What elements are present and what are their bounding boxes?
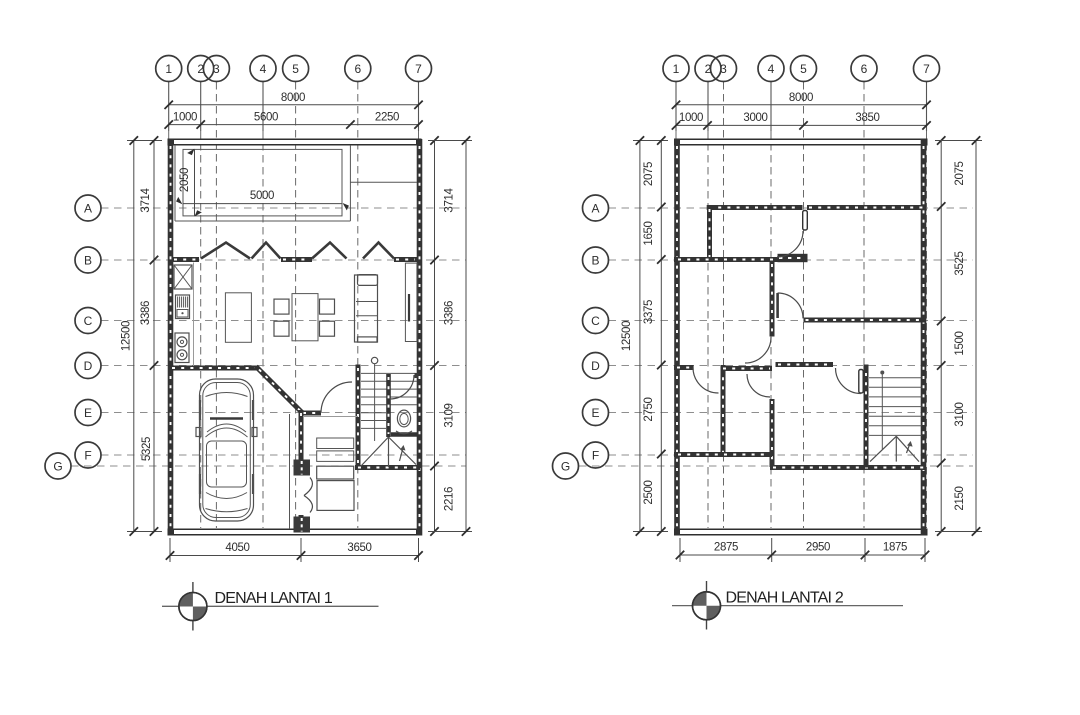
svg-text:2500: 2500 xyxy=(643,480,655,504)
svg-text:5: 5 xyxy=(292,62,299,76)
svg-text:3386: 3386 xyxy=(140,301,152,325)
svg-text:8000: 8000 xyxy=(789,92,813,104)
svg-text:DENAH LANTAI 2: DENAH LANTAI 2 xyxy=(726,589,844,606)
svg-text:2050: 2050 xyxy=(179,168,191,192)
svg-text:3714: 3714 xyxy=(444,187,456,212)
svg-text:2250: 2250 xyxy=(375,112,399,124)
svg-text:1650: 1650 xyxy=(643,221,655,245)
svg-text:2150: 2150 xyxy=(954,486,966,510)
svg-text:6: 6 xyxy=(354,62,361,76)
svg-text:G: G xyxy=(53,460,62,474)
svg-text:3375: 3375 xyxy=(643,300,655,324)
svg-text:E: E xyxy=(84,406,92,420)
svg-text:B: B xyxy=(591,254,599,268)
svg-text:1000: 1000 xyxy=(173,112,197,124)
svg-text:3714: 3714 xyxy=(140,187,152,212)
svg-text:E: E xyxy=(591,406,599,420)
svg-text:6: 6 xyxy=(861,62,868,76)
svg-text:7: 7 xyxy=(923,62,930,76)
svg-text:2875: 2875 xyxy=(714,542,738,554)
svg-text:F: F xyxy=(84,449,91,463)
svg-text:1875: 1875 xyxy=(883,542,907,554)
svg-text:1000: 1000 xyxy=(679,112,703,124)
svg-text:5325: 5325 xyxy=(141,437,153,461)
svg-text:1: 1 xyxy=(165,62,172,76)
svg-text:5: 5 xyxy=(800,62,807,76)
svg-text:2075: 2075 xyxy=(954,161,966,185)
svg-text:G: G xyxy=(561,460,570,474)
svg-text:DENAH LANTAI 1: DENAH LANTAI 1 xyxy=(215,590,333,607)
svg-text:2216: 2216 xyxy=(444,487,456,511)
svg-text:4: 4 xyxy=(768,62,775,76)
svg-text:3: 3 xyxy=(720,62,727,76)
svg-text:D: D xyxy=(84,359,93,373)
svg-text:4: 4 xyxy=(260,62,267,76)
svg-text:5600: 5600 xyxy=(254,112,278,124)
svg-text:3650: 3650 xyxy=(347,542,371,554)
svg-text:1: 1 xyxy=(673,62,680,76)
svg-text:2075: 2075 xyxy=(643,162,655,186)
svg-text:4050: 4050 xyxy=(225,542,249,554)
svg-text:2950: 2950 xyxy=(806,542,830,554)
svg-text:B: B xyxy=(84,254,92,268)
svg-text:3386: 3386 xyxy=(444,301,456,325)
svg-text:7: 7 xyxy=(415,62,422,76)
svg-text:3109: 3109 xyxy=(444,403,456,427)
svg-text:3850: 3850 xyxy=(855,112,879,124)
svg-text:C: C xyxy=(84,314,93,328)
svg-text:12500: 12500 xyxy=(621,321,633,351)
svg-text:12500: 12500 xyxy=(121,321,133,351)
svg-text:5000: 5000 xyxy=(250,190,274,202)
svg-text:3100: 3100 xyxy=(954,402,966,426)
svg-text:2750: 2750 xyxy=(643,397,655,421)
svg-text:8000: 8000 xyxy=(281,92,305,104)
svg-text:D: D xyxy=(591,359,600,373)
svg-text:3000: 3000 xyxy=(743,112,767,124)
svg-text:3525: 3525 xyxy=(954,251,966,275)
svg-text:A: A xyxy=(84,202,92,216)
svg-text:3: 3 xyxy=(213,62,220,76)
svg-text:1500: 1500 xyxy=(954,331,966,355)
svg-text:A: A xyxy=(591,202,599,216)
svg-text:C: C xyxy=(591,314,600,328)
svg-text:F: F xyxy=(592,449,599,463)
